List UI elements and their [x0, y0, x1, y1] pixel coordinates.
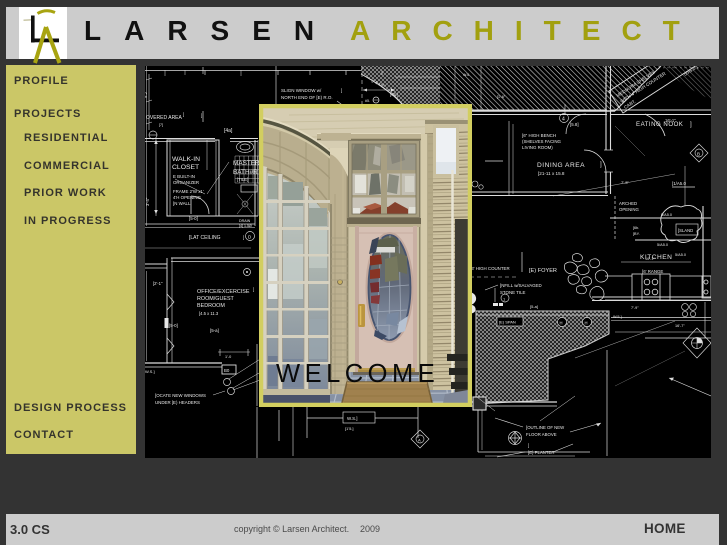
- svg-text:OPENING: OPENING: [619, 207, 639, 212]
- svg-text:[3' HIGH COUNTER: [3' HIGH COUNTER: [470, 266, 510, 271]
- svg-text:#5.: #5.: [365, 99, 370, 103]
- svg-text:]: ]: [201, 113, 202, 118]
- svg-text:DINING AREA: DINING AREA: [537, 162, 585, 169]
- svg-text:[5-a]: [5-a]: [210, 328, 219, 333]
- svg-text:W.S.]: W.S.]: [145, 369, 155, 374]
- svg-text:7'-9": 7'-9": [631, 306, 639, 310]
- svg-text:1'-0: 1'-0: [225, 355, 231, 359]
- svg-text:(SHELVES FACING: (SHELVES FACING: [522, 139, 562, 144]
- svg-text:]: ]: [243, 235, 244, 240]
- svg-text:BATH#R: BATH#R: [233, 169, 258, 176]
- svg-text:OVERED AREA: OVERED AREA: [146, 115, 183, 121]
- svg-text:WALK-IN: WALK-IN: [172, 156, 200, 163]
- svg-text:9'-2: 9'-2: [145, 92, 148, 98]
- svg-text:16'-1": 16'-1": [665, 118, 676, 123]
- svg-text:5/A5.0: 5/A5.0: [657, 243, 668, 247]
- svg-text:B: B: [697, 152, 700, 157]
- svg-text:BEDROOM: BEDROOM: [197, 303, 225, 309]
- svg-text:[1'-6": [1'-6": [497, 95, 506, 99]
- svg-text:SLIGN WINDOW w/: SLIGN WINDOW w/: [281, 88, 322, 93]
- svg-text:]: ]: [528, 443, 529, 448]
- svg-text:[OCATE NEW WINDOWS: [OCATE NEW WINDOWS: [155, 393, 206, 398]
- svg-text:[1'5.]: [1'5.]: [345, 426, 354, 431]
- svg-text:[2'-1": [2'-1": [153, 281, 163, 286]
- svg-text:[5-0]: [5-0]: [169, 323, 178, 328]
- svg-text:[E) PLANTER: [E) PLANTER: [528, 450, 555, 455]
- svg-text:[1/A5.0: [1/A5.0: [672, 181, 686, 186]
- svg-text:[NFILL w/SALVAGED: [NFILL w/SALVAGED: [500, 283, 542, 288]
- svg-text:[5-a]: [5-a]: [530, 304, 538, 309]
- svg-text:]: ]: [253, 287, 254, 292]
- svg-text:DRAIN: DRAIN: [239, 219, 251, 223]
- svg-text:[6' RANGE: [6' RANGE: [642, 269, 663, 274]
- svg-text:[#5.]: [#5.]: [390, 92, 398, 97]
- svg-text:4: 4: [562, 117, 565, 123]
- svg-text:5/A5.0: 5/A5.0: [675, 253, 686, 257]
- svg-text:NORTH END OF [E) R.O.: NORTH END OF [E) R.O.: [281, 95, 333, 100]
- svg-text:H: H: [560, 321, 563, 326]
- svg-text:E BUILT-IN: E BUILT-IN: [173, 174, 195, 179]
- svg-text:OFFICE/EXCERCISE: OFFICE/EXCERCISE: [197, 289, 250, 295]
- svg-text:W.S.]: W.S.]: [347, 416, 358, 421]
- svg-text:[4.5 x 11.3: [4.5 x 11.3: [199, 311, 219, 316]
- svg-text:5/A5.0: 5/A5.0: [661, 213, 672, 217]
- svg-text:EATING NOOK: EATING NOOK: [636, 121, 683, 128]
- svg-text:4'H OPENING: 4'H OPENING: [173, 195, 202, 200]
- svg-text:ARCHED: ARCHED: [619, 201, 637, 206]
- svg-text:[6b.: [6b.: [633, 226, 639, 230]
- svg-text:UNDER [E) HEADERS: UNDER [E) HEADERS: [155, 400, 200, 405]
- svg-text:[6" HIGH BENCH: [6" HIGH BENCH: [522, 133, 556, 138]
- svg-text:W.6: W.6: [463, 73, 469, 77]
- svg-text:[21-11 x 15.8: [21-11 x 15.8: [538, 171, 565, 176]
- svg-text:[TILE]: [TILE]: [237, 177, 248, 182]
- svg-text:[N WALL: [N WALL: [173, 201, 191, 206]
- svg-text:H: H: [585, 321, 588, 326]
- svg-text:ROOM/GUEST: ROOM/GUEST: [197, 296, 235, 302]
- svg-text:3'-4": 3'-4": [145, 197, 150, 206]
- svg-text:[OUTLINE OF NEW: [OUTLINE OF NEW: [526, 425, 565, 430]
- svg-text:[LAT CEILING: [LAT CEILING: [189, 235, 221, 241]
- svg-text:[5-0]: [5-0]: [189, 216, 198, 221]
- svg-text:FRAME 2'W x1': FRAME 2'W x1': [173, 189, 204, 194]
- svg-text:[BY.: [BY.: [633, 232, 640, 236]
- svg-text:[4a]: [4a]: [224, 128, 233, 134]
- svg-text:]: ]: [341, 88, 342, 93]
- svg-text:[E) SPAN: [E) SPAN: [499, 320, 516, 325]
- svg-text:B0: B0: [224, 368, 230, 373]
- svg-text:[5.8]: [5.8]: [570, 122, 579, 127]
- svg-text:MASTER: MASTER: [233, 160, 260, 167]
- svg-text:FLOOR ABOVE: FLOOR ABOVE: [526, 432, 557, 437]
- svg-text:[SLAND: [SLAND: [678, 228, 693, 233]
- svg-text:LIVING ROOM): LIVING ROOM): [522, 145, 553, 150]
- svg-text:CLOSET: CLOSET: [172, 164, 199, 171]
- svg-text:A: A: [418, 438, 421, 443]
- svg-text:]: ]: [183, 112, 184, 117]
- svg-text:16'-7": 16'-7": [675, 324, 685, 328]
- svg-text:W.5.]: W.5.]: [613, 315, 622, 319]
- svg-text:[7]: [7]: [159, 123, 163, 127]
- svg-text:16'-1": 16'-1": [645, 257, 655, 261]
- svg-text:WELCOME: WELCOME: [276, 360, 439, 388]
- svg-text:[E) FOYER: [E) FOYER: [529, 268, 557, 274]
